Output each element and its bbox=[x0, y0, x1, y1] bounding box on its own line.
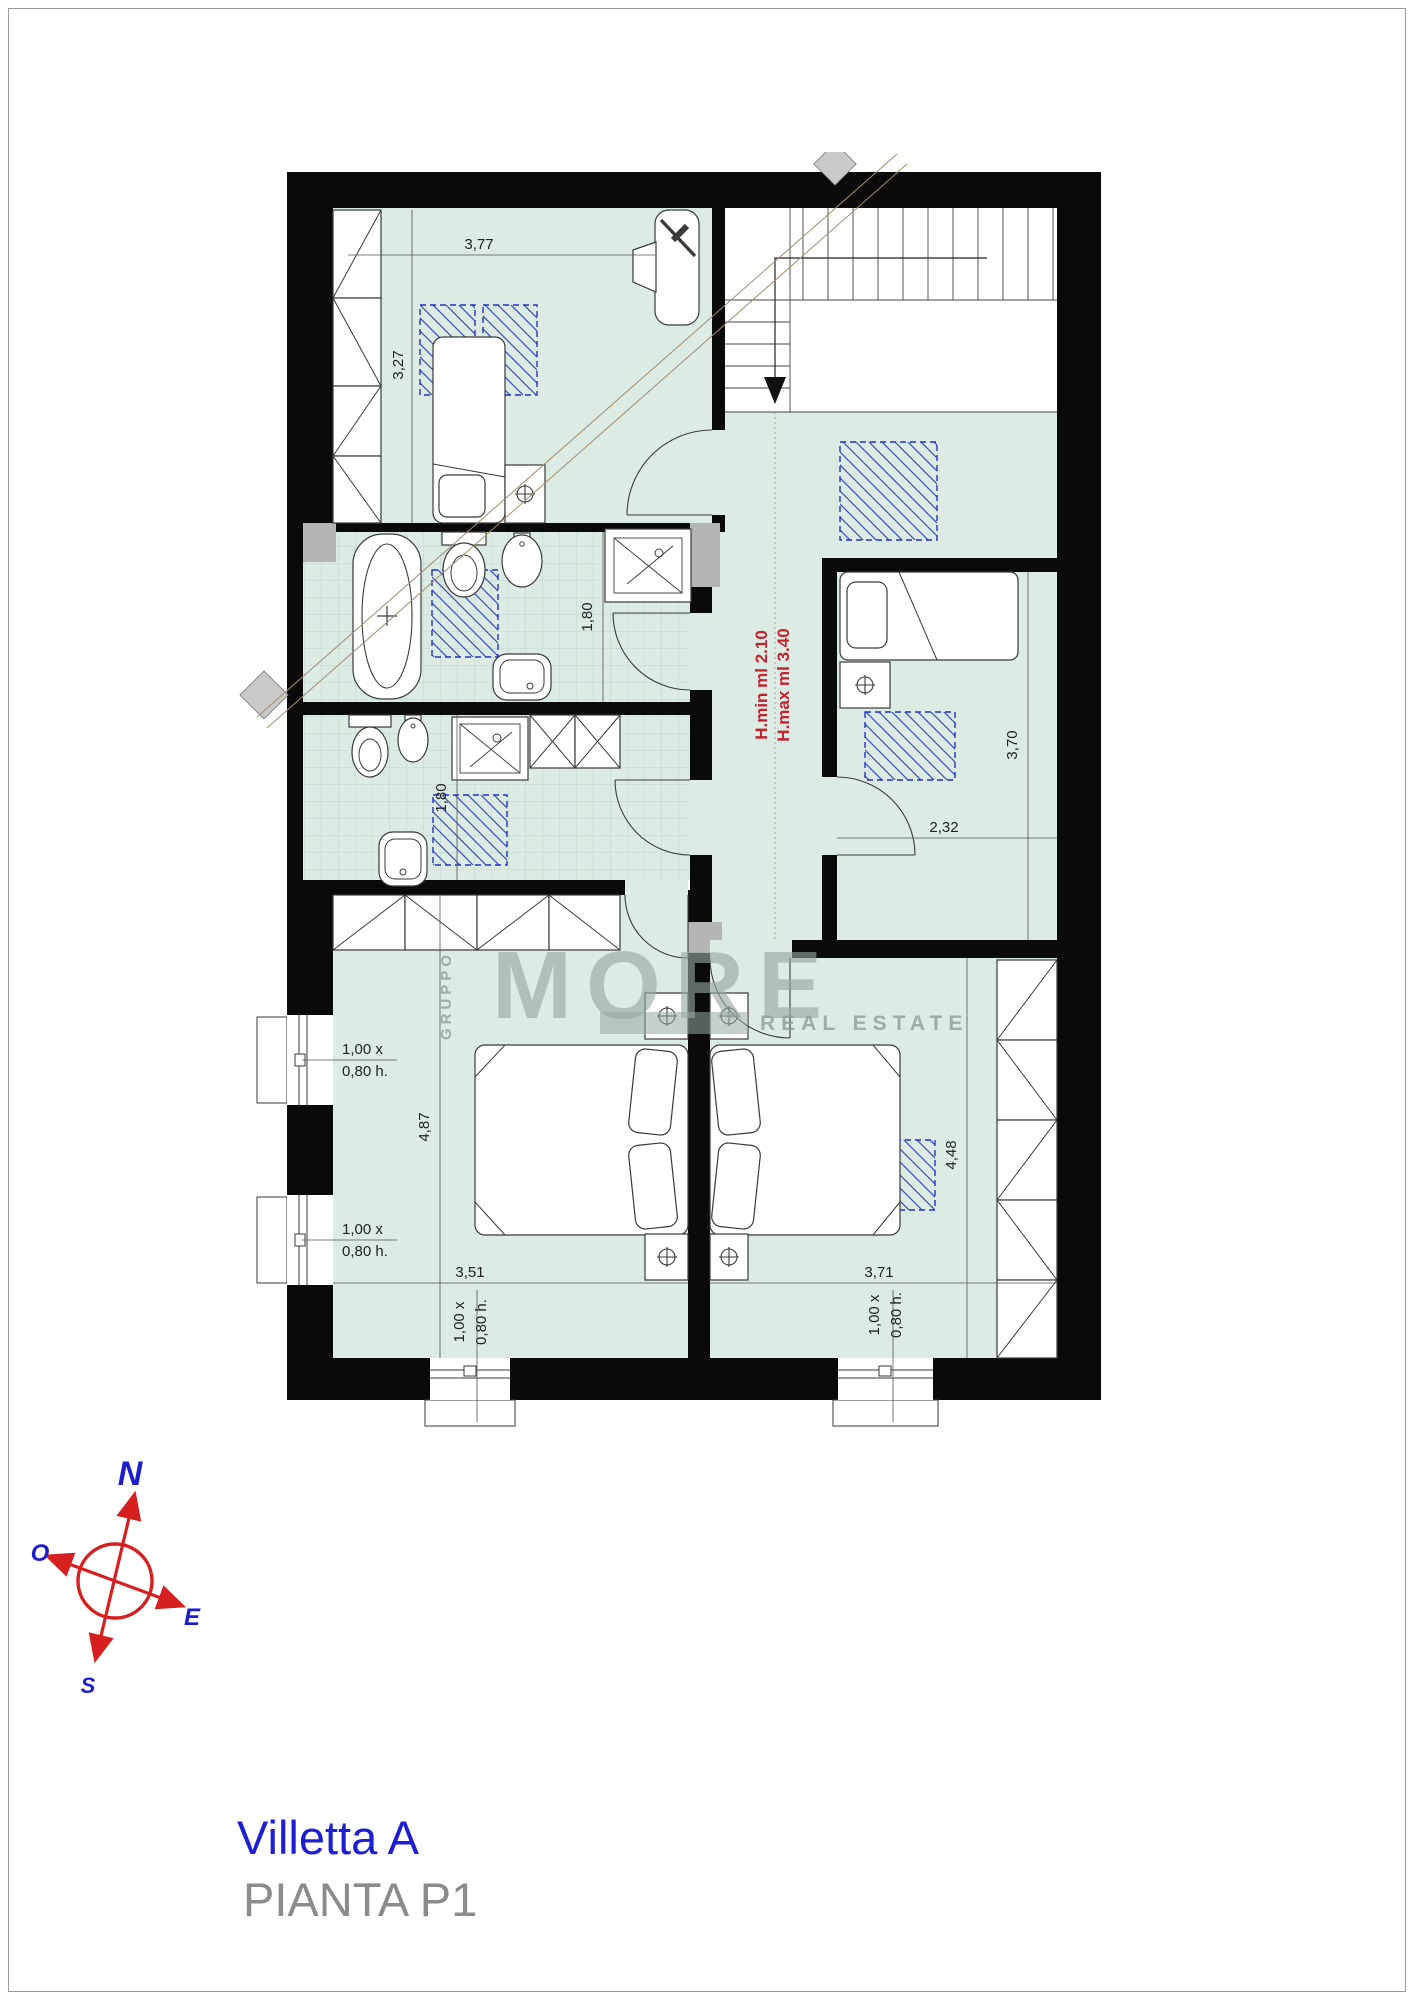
stair-area bbox=[712, 208, 1057, 412]
floor-plan: 3,77 3,27 1,80 1,80 3,70 2,32 4,87 3,51 … bbox=[227, 152, 1117, 1452]
toilet bbox=[352, 727, 388, 777]
pilaster-corridor bbox=[690, 523, 720, 587]
page: 3,77 3,27 1,80 1,80 3,70 2,32 4,87 3,51 … bbox=[0, 0, 1414, 2000]
compass-oe-arrow bbox=[50, 1557, 180, 1605]
watermark-bar bbox=[600, 1012, 748, 1034]
compass-east-label: E bbox=[184, 1604, 201, 1631]
pilaster-left bbox=[303, 523, 336, 562]
bidet bbox=[502, 535, 542, 587]
svg-text:0,80 h.: 0,80 h. bbox=[342, 1243, 388, 1260]
staircase bbox=[712, 208, 1057, 412]
desk bbox=[655, 210, 699, 325]
rug-landing bbox=[840, 442, 937, 540]
dim-bedroom-nw-depth: 3,27 bbox=[390, 350, 407, 379]
dim-bedroom-e-width: 2,32 bbox=[929, 819, 958, 836]
window-bottom-left bbox=[425, 1358, 515, 1426]
dim-bedroom-se-depth: 4,48 bbox=[943, 1140, 960, 1169]
section-mark-sw bbox=[240, 671, 288, 719]
svg-text:1,00 x: 1,00 x bbox=[342, 1221, 383, 1238]
svg-text:0,80 h.: 0,80 h. bbox=[473, 1299, 490, 1345]
wardrobe-bedroom-se bbox=[997, 960, 1057, 1358]
height-note-line2: H.max ml 3.40 bbox=[774, 628, 793, 741]
compass-west-label: O bbox=[31, 1540, 50, 1567]
sink bbox=[379, 832, 427, 886]
svg-text:1,00 x: 1,00 x bbox=[451, 1301, 468, 1342]
svg-text:1,00 x: 1,00 x bbox=[342, 1041, 383, 1058]
rug-bedroom-e bbox=[865, 712, 955, 780]
toilet bbox=[443, 543, 485, 597]
svg-text:1,00 x: 1,00 x bbox=[866, 1294, 883, 1335]
closet-bathroom-bottom bbox=[530, 715, 620, 768]
watermark-gruppo: GRUPPO bbox=[438, 930, 455, 1040]
toilet-tank bbox=[349, 715, 391, 727]
compass-north-label: N bbox=[118, 1455, 144, 1493]
svg-text:0,80 h.: 0,80 h. bbox=[888, 1292, 905, 1338]
bidet bbox=[398, 718, 428, 762]
project-title: Villetta A bbox=[237, 1810, 419, 1865]
svg-text:0,80 h.: 0,80 h. bbox=[342, 1063, 388, 1080]
height-note-line1: H.min ml 2.10 bbox=[752, 630, 771, 740]
watermark-tagline: REAL ESTATE bbox=[760, 1012, 968, 1036]
compass-south-label: S bbox=[81, 1673, 96, 1698]
dim-bedroom-sw-depth: 4,87 bbox=[416, 1112, 433, 1141]
dim-bathroom-bottom-width: 1,80 bbox=[433, 783, 450, 812]
pillow bbox=[439, 475, 485, 517]
wardrobe-bedroom-nw bbox=[333, 210, 381, 523]
pillow bbox=[847, 582, 887, 648]
drawing-title: PIANTA P1 bbox=[243, 1872, 477, 1927]
dim-bedroom-nw-width: 3,77 bbox=[464, 236, 493, 253]
pillow bbox=[711, 1048, 762, 1136]
compass-rose: N O E S bbox=[30, 1435, 250, 1715]
pillow bbox=[711, 1142, 762, 1230]
pillow bbox=[628, 1048, 679, 1136]
dim-bedroom-se-width: 3,71 bbox=[864, 1264, 893, 1281]
window-bottom-right bbox=[833, 1358, 938, 1426]
dim-bedroom-e-depth: 3,70 bbox=[1004, 730, 1021, 759]
dim-bedroom-sw-width: 3,51 bbox=[455, 1264, 484, 1281]
dim-bathroom-top-width: 1,80 bbox=[579, 602, 596, 631]
pillow bbox=[628, 1142, 679, 1230]
